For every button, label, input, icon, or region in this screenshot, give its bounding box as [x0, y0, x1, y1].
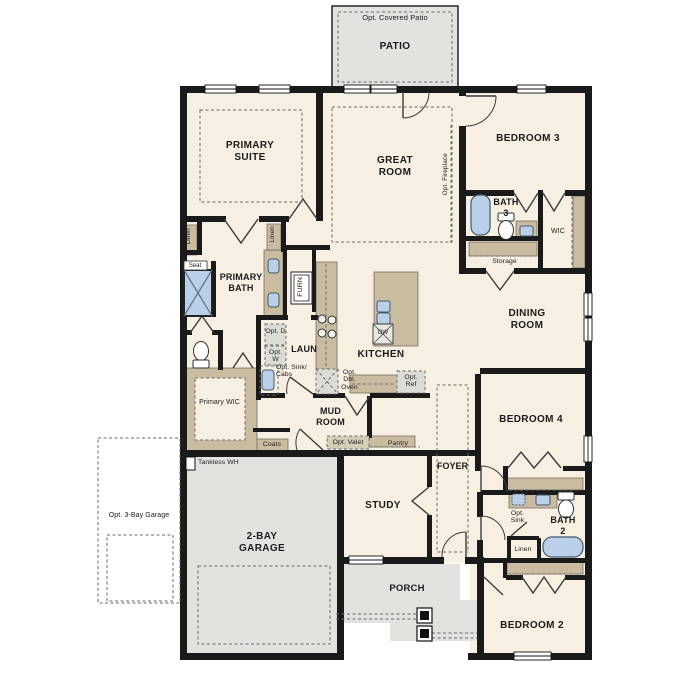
porch-label: PORCH: [377, 583, 437, 594]
seat-label: Seat: [184, 263, 206, 269]
bedroom3-label: BEDROOM 3: [478, 133, 578, 145]
wic-label: WIC: [546, 228, 570, 236]
window: [584, 293, 592, 316]
primary-toilet-icon: [193, 342, 209, 369]
primary-wic-label: Primary WIC: [197, 399, 242, 407]
window: [344, 85, 370, 93]
tankless-wh-label: Tankless WH: [198, 459, 240, 466]
window: [584, 318, 592, 341]
opt-dbl-oven-label: Opt. Dbl. Oven: [339, 369, 360, 391]
primary-bath-label: PRIMARY BATH: [212, 272, 270, 293]
window: [371, 85, 397, 93]
linen-a-label: Linen: [185, 228, 192, 244]
laundry-opt-sink-icon: [262, 370, 274, 390]
bedroom4-closet-shelf: [507, 478, 583, 490]
bedroom2-label: BEDROOM 2: [482, 620, 582, 632]
tankless-water-heater-icon: [186, 457, 195, 470]
garage-label: 2-BAY GARAGE: [227, 531, 297, 555]
bedroom2-closet-shelf: [507, 562, 583, 574]
linen-b-label: Linen: [269, 226, 276, 242]
bath3-tub-icon: [471, 195, 490, 235]
bath2-sink-icon: [536, 495, 550, 505]
porch-column-icon: [417, 608, 432, 623]
bath3-sink-icon: [520, 226, 533, 236]
opt-3bay-garage-label: Opt. 3-Bay Garage: [108, 512, 170, 520]
primary-suite-label: PRIMARY SUITE: [215, 140, 285, 164]
window: [259, 85, 290, 93]
opt-3bay-garage-door-outline: [107, 535, 173, 601]
opt-sink-label: Opt. Sink: [505, 510, 530, 525]
dining-room-label: DINING ROOM: [497, 308, 557, 332]
kitchen-label: KITCHEN: [351, 349, 411, 361]
dishwasher-label: DW: [374, 330, 392, 336]
opt-dbl-oven-box: [316, 369, 338, 394]
opt-washer-label: Opt. W: [265, 349, 286, 364]
primary-sink-1-icon: [268, 259, 279, 273]
window: [514, 652, 551, 660]
bath2-label: BATH 2: [547, 515, 579, 536]
walkway-floor: [390, 600, 478, 641]
opt-fireplace-label: Opt. Fireplace: [442, 153, 449, 195]
porch-column-icon: [417, 626, 432, 641]
opt-ref-label: Opt. Ref: [399, 374, 423, 389]
furn-label: FURN: [297, 277, 305, 297]
opt-covered-patio-label: Opt. Covered Patio: [335, 14, 455, 22]
primary-sink-2-icon: [268, 293, 279, 307]
foyer-label: FOYER: [434, 461, 471, 472]
floor-plan-drawing: [0, 0, 687, 687]
primary-wic-floor: [195, 378, 245, 440]
storage-shelf: [469, 242, 537, 256]
linen-c-label: Linen: [509, 546, 537, 553]
window: [517, 85, 546, 93]
opt-3bay-garage-outline: [98, 438, 180, 603]
window: [584, 436, 592, 462]
coats-label: Coats: [256, 441, 288, 448]
bath2-tub-icon: [543, 537, 583, 557]
opt-sink-cabs-label: Opt. Sink/ Cabs: [276, 364, 312, 379]
wic-shelf: [573, 196, 585, 268]
pantry-label: Pantry: [376, 440, 420, 447]
window: [205, 85, 236, 93]
window: [349, 556, 383, 564]
study-label: STUDY: [353, 500, 413, 512]
opt-dryer-label: Opt. D: [265, 328, 286, 335]
mud-room-label: MUD ROOM: [308, 406, 353, 427]
opt-valet-label: Opt. Valet: [328, 439, 368, 446]
patio-label: PATIO: [365, 41, 425, 53]
floor-plan: Opt. Covered Patio PATIO PRIMARY SUITE G…: [0, 0, 687, 687]
laundry-label: LAUN: [286, 344, 322, 355]
great-room-label: GREAT ROOM: [360, 155, 430, 179]
bath3-label: BATH 3: [491, 197, 521, 218]
storage-label: Storage: [482, 258, 527, 265]
bath2-opt-sink-icon: [512, 494, 525, 505]
bedroom4-label: BEDROOM 4: [486, 414, 576, 426]
